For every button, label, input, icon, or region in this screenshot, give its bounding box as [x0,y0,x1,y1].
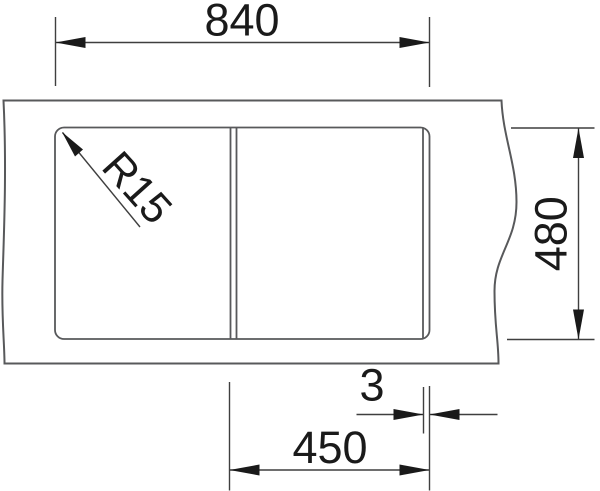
radius-callout: R15 [62,132,181,233]
dim-480-arrowhead-top [573,128,584,158]
dim-3-arrowhead-right [430,409,460,420]
dimension-overall-width: 840 [56,0,430,87]
sink-outline [2,101,516,364]
dimension-divider-width: 3 [357,360,498,434]
dimension-bowl-width: 450 [230,382,430,491]
radius-label: R15 [93,143,181,234]
dim-840-label: 840 [204,0,279,46]
dim-840-arrowhead-right [400,37,430,48]
drawing-canvas: 840 480 450 3 [0,0,600,491]
dim-3-arrowhead-left [394,409,424,420]
dim-450-arrowhead-right [400,465,430,476]
dim-3-label: 3 [359,360,384,411]
dimension-depth: 480 [507,128,595,340]
sink-technical-drawing: 840 480 450 3 [0,0,600,491]
dim-450-label: 450 [292,422,367,473]
dim-480-arrowhead-bottom [573,310,584,340]
dim-450-arrowhead-left [230,465,260,476]
dim-480-label: 480 [526,196,577,271]
dim-840-arrowhead-left [56,37,86,48]
